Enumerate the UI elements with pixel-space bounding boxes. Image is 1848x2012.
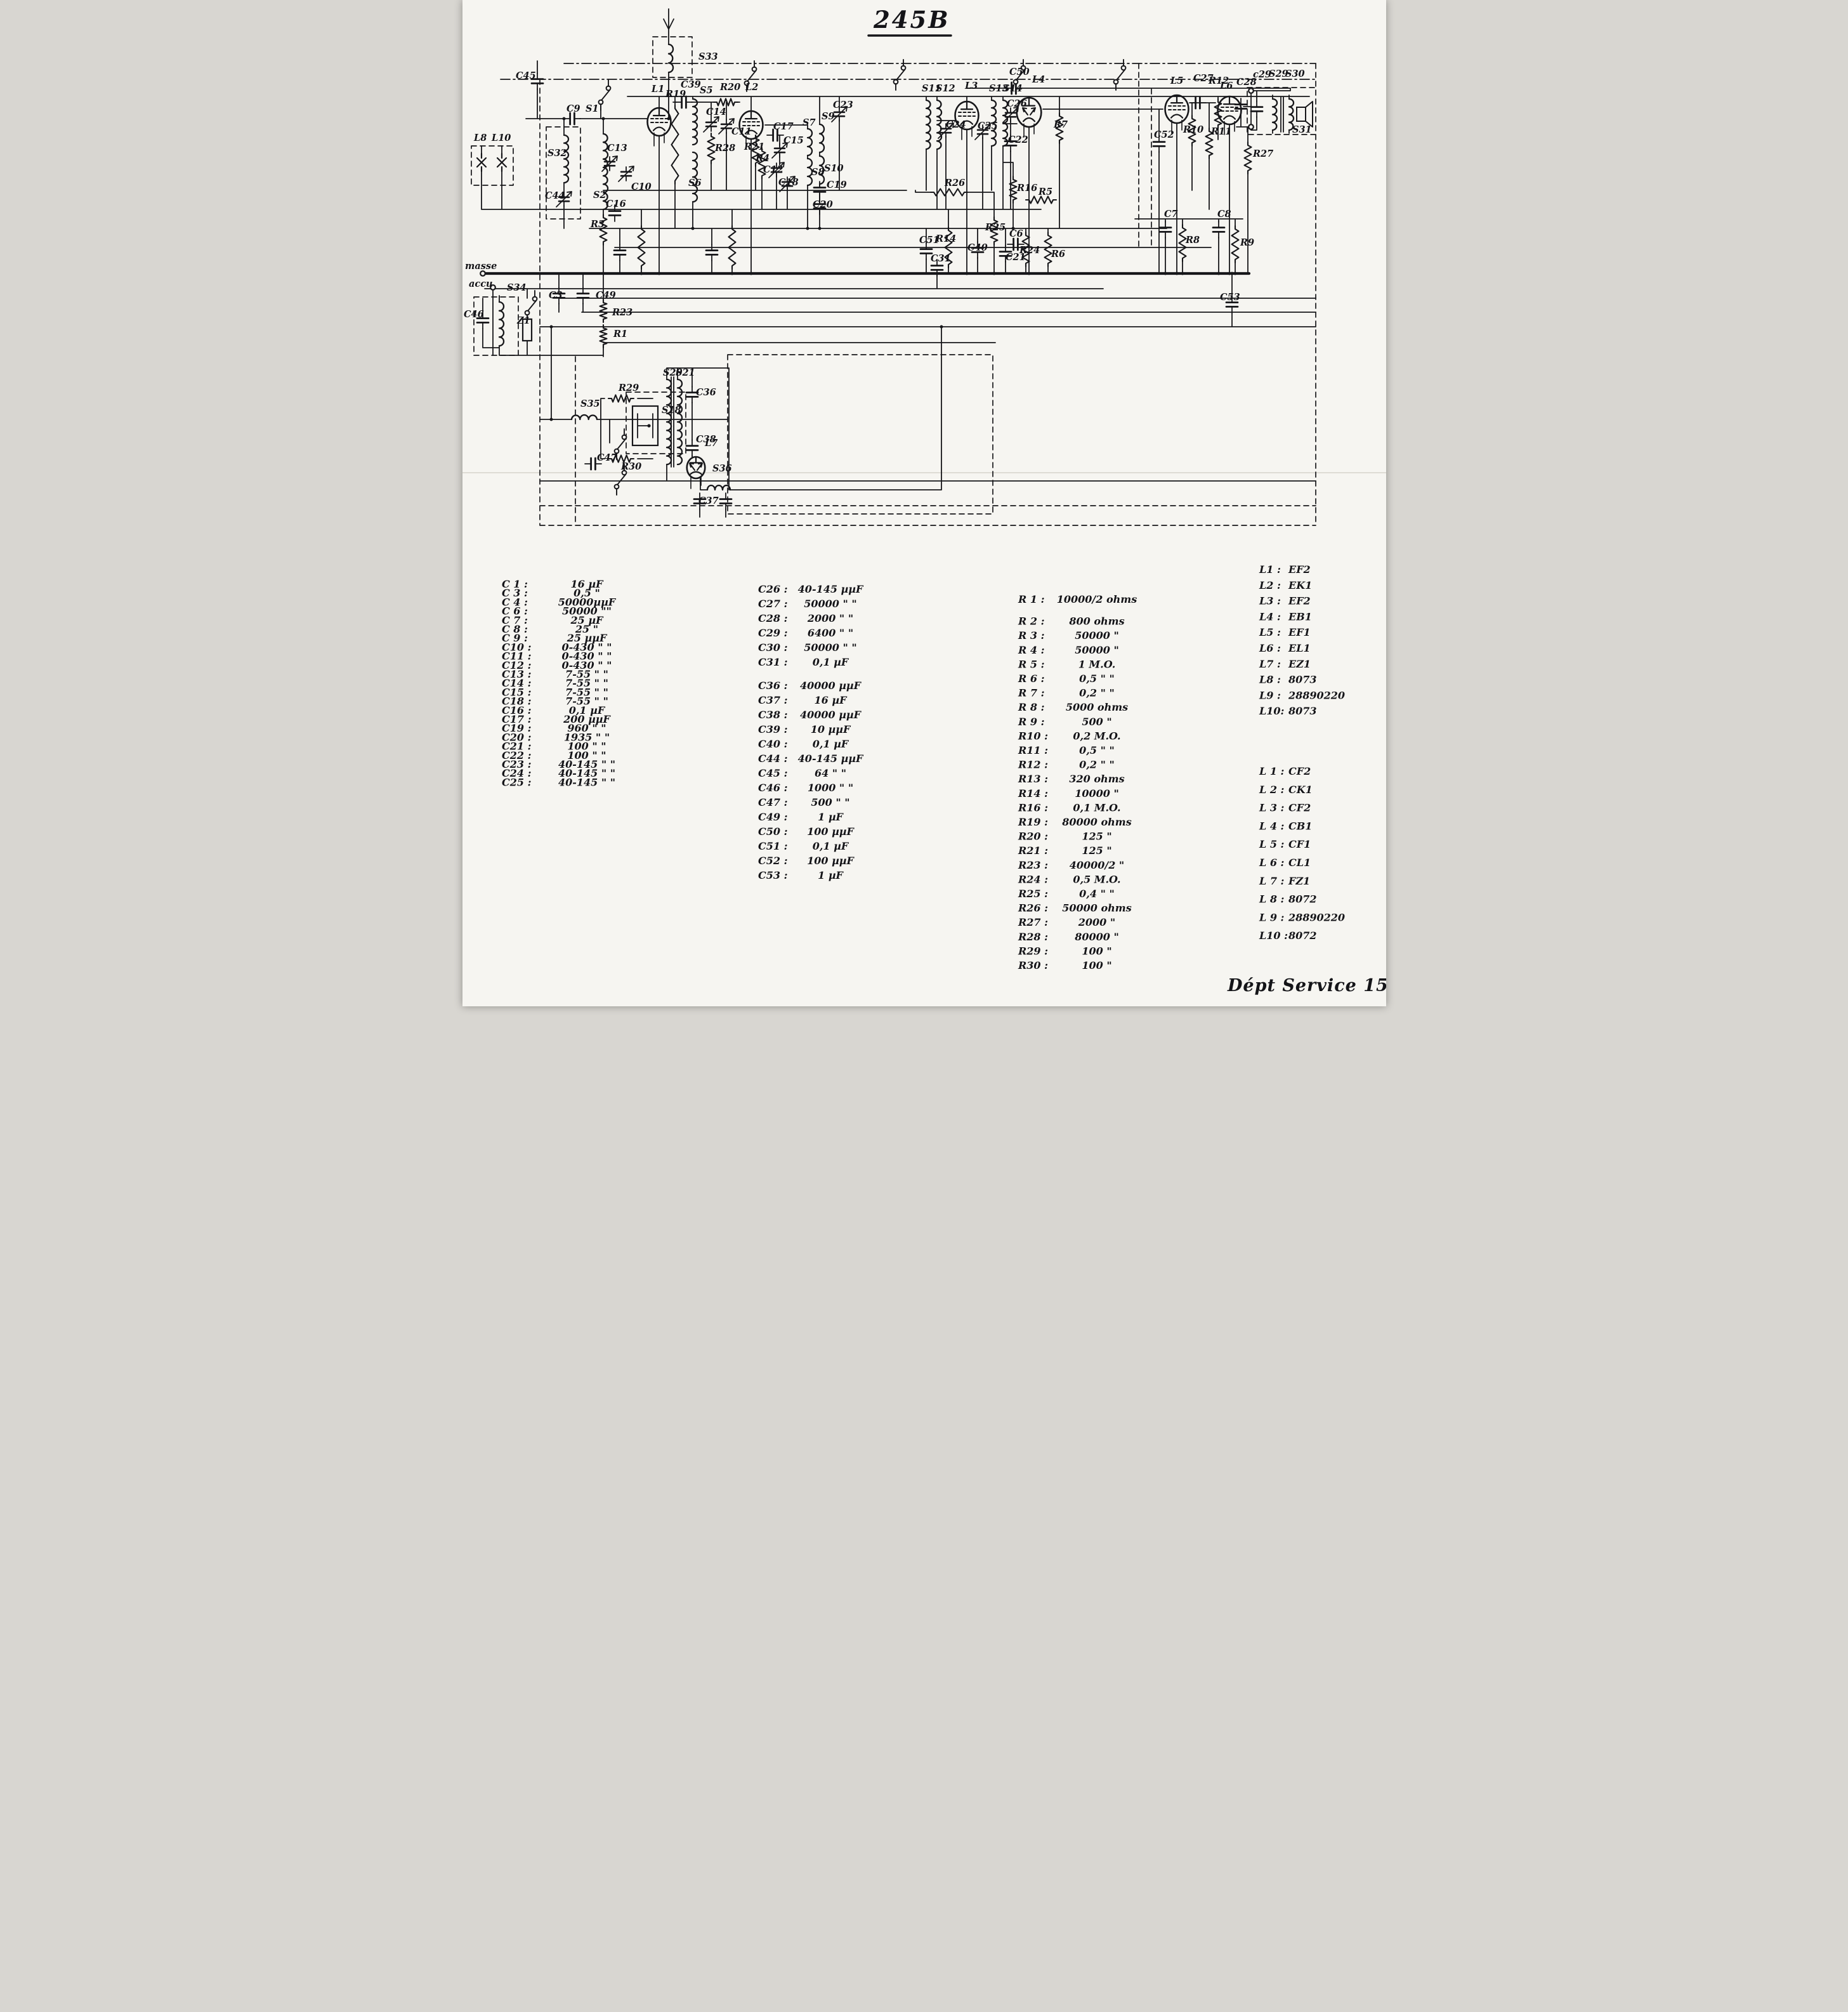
part-value: 0,2 " ": [1079, 759, 1115, 771]
part-value: CL1: [1288, 857, 1311, 869]
part-ref: C47 :: [758, 796, 788, 808]
part-value: 40000 µµF: [799, 709, 862, 721]
schematic-label-L7: L7: [704, 438, 718, 449]
coil-symbol: [1273, 99, 1277, 130]
part-value: EZ1: [1288, 658, 1311, 670]
part-value: 40-145 " ": [558, 776, 615, 788]
part-ref: C45 :: [758, 767, 788, 779]
junction-dot: [639, 272, 643, 275]
junction-dot: [730, 272, 733, 275]
part-ref: R10 :: [1018, 730, 1048, 742]
coil-symbol: [820, 124, 824, 152]
schematic-label-C26: C26: [1007, 98, 1027, 109]
capacitor-symbol: [706, 244, 718, 261]
schematic-label-S1: S1: [586, 103, 599, 114]
part-ref: R 8 :: [1018, 701, 1045, 713]
schematic-label-C37: C37: [698, 496, 719, 506]
schematic-label-C18: C18: [778, 177, 799, 188]
schematic-label-C52: C52: [1154, 129, 1174, 140]
part-value: 10000 ": [1075, 787, 1119, 799]
schematic-label-Z1: Z1: [516, 315, 530, 326]
part-ref: L3 :: [1259, 595, 1281, 607]
part-value: 0,1 µF: [812, 656, 849, 668]
resistor-symbol: [1244, 142, 1251, 174]
part-ref: C25 :: [502, 776, 532, 788]
part-value: 50000 " ": [804, 598, 856, 610]
part-value: 0,1 µF: [812, 738, 849, 750]
resistor-symbol: [600, 325, 606, 348]
junction-dot: [992, 272, 995, 275]
part-ref: C31 :: [758, 656, 788, 668]
schematic-label-C14: C14: [706, 107, 726, 117]
capacitor-symbol: [1160, 221, 1171, 238]
coil-symbol: [693, 152, 697, 202]
wires: [482, 9, 1316, 517]
part-value: CF1: [1288, 838, 1311, 850]
schematic-label-R29: R29: [618, 383, 639, 393]
part-ref: C44 :: [758, 753, 788, 765]
part-value: EF2: [1288, 595, 1311, 607]
schematic-label-C6: C6: [1009, 228, 1023, 239]
part-value: CK1: [1288, 784, 1313, 796]
schematic-label-C50: C50: [1009, 67, 1030, 77]
part-ref: L2 :: [1259, 579, 1281, 591]
part-ref: L 8 :: [1259, 893, 1285, 905]
page-title: 245B: [873, 6, 950, 34]
part-ref: L10:: [1259, 705, 1285, 717]
schematic-label-masse: masse: [465, 261, 497, 272]
part-ref: C36 :: [758, 680, 788, 692]
part-ref: R19 :: [1018, 816, 1048, 828]
schematic-label-C15: C15: [783, 135, 804, 146]
part-ref: L 9 :: [1259, 911, 1285, 923]
part-ref: R 9 :: [1018, 716, 1045, 728]
part-value: 500 ": [1082, 716, 1111, 728]
schematic-label-L4: L4: [1032, 74, 1045, 85]
service-note: Dépt Service 1562: [1227, 976, 1386, 996]
part-ref: C50 :: [758, 825, 788, 838]
schematic-label-R1: R1: [613, 329, 627, 339]
part-value: 100 µµF: [807, 855, 855, 867]
junction-dot: [549, 325, 553, 329]
part-value: 0,2 " ": [1079, 687, 1115, 699]
coil-symbol: [808, 129, 812, 155]
part-ref: R28 :: [1018, 931, 1048, 943]
schematic-label-R25: R25: [985, 222, 1006, 233]
schematic-label-R4: R4: [755, 153, 770, 164]
schematic-label-C12: C12: [763, 164, 783, 175]
schematic-label-C8: C8: [1217, 209, 1231, 220]
schematic-label-C45: C45: [516, 70, 536, 81]
part-ref: C28 :: [758, 612, 788, 624]
part-ref: R11 :: [1018, 744, 1048, 756]
schematic-label-S6: S6: [688, 178, 702, 188]
junction-dot: [549, 418, 553, 421]
resistor-symbol: [600, 299, 606, 322]
part-value: 10 µµF: [810, 723, 851, 735]
schematic-label-S31: S31: [1292, 124, 1312, 135]
terminal-circle: [1248, 88, 1254, 93]
junction-dot: [1217, 272, 1220, 275]
junction-dot: [749, 272, 752, 275]
part-ref: R14 :: [1018, 787, 1048, 799]
part-ref: C49 :: [758, 811, 788, 823]
schematic-label-S34: S34: [507, 282, 527, 293]
part-ref: L 4 :: [1259, 820, 1285, 832]
part-ref: R 3 :: [1018, 629, 1045, 641]
part-ref: L 7 :: [1259, 875, 1285, 887]
part-ref: C39 :: [758, 723, 788, 735]
capacitor-symbol: [814, 181, 825, 198]
part-ref: C40 :: [758, 738, 788, 750]
schematic-label-R14: R14: [935, 233, 956, 244]
diode-symbol: [497, 154, 506, 171]
part-ref: R27 :: [1018, 916, 1048, 928]
coil-symbol: [669, 44, 673, 72]
part-value: 40000/2 ": [1069, 859, 1124, 871]
part-value: 0,1 M.O.: [1073, 801, 1120, 813]
part-value: 10000/2 ohms: [1056, 593, 1136, 605]
part-ref: L 6 :: [1259, 857, 1285, 869]
schematic-label-R26: R26: [944, 178, 965, 188]
resistor-symbol: [714, 99, 738, 106]
part-value: 8073: [1288, 674, 1317, 686]
coil-symbol: [926, 100, 931, 149]
part-value: 64 " ": [814, 767, 846, 779]
part-ref: R 5 :: [1018, 658, 1045, 670]
part-value: 125 ": [1082, 845, 1111, 857]
resistor-symbol: [931, 189, 967, 196]
part-value: 100 ": [1082, 945, 1111, 957]
schematic-label-S18: S18: [662, 405, 681, 416]
components: [477, 44, 1313, 510]
part-ref: C38 :: [758, 709, 788, 721]
part-ref: L 1 :: [1259, 765, 1285, 777]
schematic-label-R27: R27: [1252, 148, 1273, 159]
part-value: CF2: [1288, 765, 1311, 777]
junction-dot: [1233, 272, 1236, 275]
part-ref: R20 :: [1018, 831, 1048, 843]
part-value: 5000 ohms: [1065, 701, 1127, 713]
part-ref: R21 :: [1018, 845, 1048, 857]
schematic-label-L2: L2: [745, 82, 758, 93]
part-ref: L10 :: [1259, 930, 1288, 942]
schematic-label-R8: R8: [1185, 235, 1200, 246]
schematic-label-L5: L5: [1170, 76, 1183, 86]
part-ref: L8 :: [1259, 674, 1281, 686]
part-ref: L 2 :: [1259, 784, 1285, 796]
part-value: 0,5 M.O.: [1073, 873, 1120, 885]
part-value: 800 ohms: [1068, 615, 1124, 628]
part-ref: C26 :: [758, 583, 788, 595]
schematic-label-R21: R21: [744, 141, 764, 152]
junction-dot: [965, 272, 968, 275]
schematic-label-C53: C53: [1220, 292, 1240, 303]
part-value: 100 µµF: [807, 825, 855, 838]
schematic-label-R20: R20: [719, 82, 740, 93]
part-value: EK1: [1288, 579, 1312, 591]
capacitor-symbol: [1251, 101, 1262, 117]
schematic-label-L8: L8: [473, 133, 487, 143]
terminal-circle: [1248, 124, 1254, 129]
part-value: 40-145 µµF: [797, 753, 863, 765]
schematic-label-S32: S32: [547, 148, 567, 159]
part-value: FZ1: [1288, 875, 1310, 887]
wiring: [482, 9, 1316, 517]
part-ref: R 2 :: [1018, 615, 1045, 628]
part-value: 50000 ": [1075, 644, 1119, 656]
schematic-label-C24: C24: [946, 119, 966, 130]
schematic-label-R5: R5: [1038, 187, 1052, 197]
schematic-label-S33: S33: [698, 51, 718, 62]
part-value: EF2: [1288, 563, 1311, 575]
schematic-label-C40: C40: [967, 242, 988, 253]
schematic-label-S8: S8: [811, 167, 825, 178]
junction-dot: [1027, 272, 1030, 275]
part-ref: L 3 :: [1259, 802, 1285, 814]
schematic-label-C47: C47: [597, 452, 617, 463]
schematic-label-R10: R10: [1183, 124, 1203, 135]
part-value: 6400 " ": [807, 627, 853, 639]
schematic-label-L1: L1: [651, 84, 664, 95]
schematic-label-C31: C31: [931, 253, 951, 264]
part-ref: L4 :: [1259, 610, 1281, 622]
junction-dot: [667, 117, 670, 121]
resistor-symbol: [671, 105, 678, 184]
resistor-symbol: [707, 133, 714, 164]
coil-symbol: [707, 485, 730, 490]
schematic-label-C36: C36: [696, 387, 716, 398]
junction-dot: [601, 272, 605, 275]
schematic-label-C11: C11: [731, 126, 752, 137]
part-ref: R29 :: [1018, 945, 1048, 957]
schematic-label-C10: C10: [631, 181, 652, 192]
part-value: 50000 ": [1075, 629, 1119, 641]
part-value: 40000 µµF: [799, 680, 862, 692]
part-ref: C37 :: [758, 694, 788, 706]
schematic-label-R3: R3: [590, 219, 605, 230]
part-value: 2000 ": [1077, 916, 1115, 928]
part-value: 0,5 " ": [1079, 744, 1115, 756]
part-ref: R24 :: [1018, 873, 1048, 885]
schematic-label-C7: C7: [1164, 209, 1178, 220]
diode-symbol: [477, 154, 486, 171]
resistor-symbol: [1231, 226, 1238, 263]
part-value: 100 ": [1082, 959, 1111, 971]
part-ref: R12 :: [1018, 759, 1048, 771]
schematic-label-C19: C19: [827, 180, 847, 190]
schematic-label-C22: C22: [1008, 135, 1028, 145]
trimmer-capacitor-symbol: [704, 117, 719, 132]
part-value: 0,1 µF: [812, 840, 849, 852]
part-ref: L1 :: [1259, 563, 1281, 575]
junction-dot: [562, 117, 565, 121]
schematic-label-S10: S10: [824, 163, 844, 174]
part-ref: C46 :: [758, 782, 788, 794]
junction-dot: [940, 325, 943, 329]
part-value: CF2: [1288, 802, 1311, 814]
junction-dot: [806, 227, 809, 230]
part-ref: R13 :: [1018, 773, 1048, 785]
part-value: 0,5 " ": [1079, 673, 1115, 685]
schematic-label-S7: S7: [803, 117, 816, 128]
part-ref: L5 :: [1259, 626, 1281, 638]
part-value: 8072: [1288, 930, 1317, 942]
schematic-label-C25: C25: [978, 121, 998, 131]
resistor-symbol: [1044, 232, 1051, 266]
part-value: 125 ": [1082, 831, 1111, 843]
junction-dot: [818, 227, 821, 230]
switch-symbol: [598, 80, 610, 110]
junction-dot: [657, 272, 660, 275]
part-value: 50000 ohms: [1062, 902, 1131, 914]
schematic-label-L3: L3: [964, 81, 978, 91]
capacitor-symbol: [577, 287, 589, 304]
part-ref: R16 :: [1018, 801, 1048, 813]
part-ref: C52 :: [758, 855, 788, 867]
schematic-label-S5: S5: [700, 85, 713, 96]
junction-dot: [691, 227, 694, 230]
part-value: 0,2 M.O.: [1073, 730, 1120, 742]
part-ref: L7 :: [1259, 658, 1281, 670]
schematic-label-C13: C13: [607, 143, 627, 154]
schematic-label-C39: C39: [681, 79, 701, 90]
part-ref: C53 :: [758, 869, 788, 881]
part-ref: C51 :: [758, 840, 788, 852]
scanned-page: 245B S33C45C9S1S32C44C13C10C16S2R3L8L10m…: [462, 0, 1386, 1006]
resistor-symbol: [608, 395, 634, 402]
schematic-label-S21: S21: [676, 367, 695, 378]
part-value: EB1: [1288, 610, 1312, 622]
part-value: CB1: [1288, 820, 1312, 832]
resistor-symbol: [1026, 197, 1056, 204]
part-value: EL1: [1288, 642, 1311, 654]
part-value: 320 ohms: [1069, 773, 1124, 785]
part-ref: C27 :: [758, 598, 788, 610]
coil-symbol: [667, 379, 671, 464]
capacitor-symbol: [1213, 221, 1224, 238]
coil-symbol: [499, 302, 504, 346]
schematic-label-accu: accu: [469, 279, 493, 289]
part-value: 8073: [1288, 705, 1317, 717]
switch-symbol: [1113, 60, 1125, 90]
schematic-label-S36: S36: [712, 463, 732, 474]
part-ref: L6 :: [1259, 642, 1281, 654]
vibrator-symbol: [632, 406, 658, 445]
part-value: EF1: [1288, 626, 1311, 638]
part-ref: C29 :: [758, 627, 788, 639]
part-value: 2000 " ": [806, 612, 853, 624]
part-value: 0,4 " ": [1079, 888, 1115, 900]
junction-dot: [1181, 272, 1184, 275]
junction-dot: [601, 117, 605, 121]
schematic-label-C17: C17: [773, 121, 794, 132]
schematic-label-C9: C9: [567, 103, 580, 114]
part-value: 80000 ": [1074, 931, 1119, 943]
part-value: 1 µF: [818, 869, 844, 881]
part-value: 80000 ohms: [1061, 816, 1131, 828]
schematic-label-S9: S9: [822, 111, 835, 122]
schematic-label-C46: C46: [464, 309, 484, 320]
switch-symbol: [893, 60, 905, 90]
page-canvas: 245B S33C45C9S1S32C44C13C10C16S2R3L8L10m…: [462, 0, 1386, 1006]
speaker-icon: [1297, 102, 1313, 127]
schematic-label-C23: C23: [833, 100, 853, 110]
schematic-label-R19: R19: [665, 89, 686, 100]
coil-symbol: [564, 135, 568, 183]
capacitor-symbol: [720, 493, 731, 510]
capacitor-symbol: [564, 113, 580, 124]
schematic-label-R28: R28: [714, 143, 735, 154]
junction-dot: [1175, 272, 1178, 275]
schematic-label-C44: C44: [545, 190, 565, 201]
coil-symbol: [937, 100, 941, 149]
schematic-label-R23: R23: [612, 307, 632, 318]
trimmer-capacitor-symbol: [619, 166, 634, 181]
part-value: 28890220: [1288, 911, 1345, 923]
schematic-label-R16: R16: [1016, 183, 1037, 194]
part-ref: R30 :: [1018, 959, 1048, 971]
coil-symbol: [693, 99, 697, 145]
part-ref: R 1 :: [1018, 593, 1045, 605]
parts-list: C 1 :16 µFC 3 :0,5 "C 4 :50000µµFC 6 :50…: [502, 563, 1345, 971]
capacitor-symbol: [614, 244, 626, 261]
resistor-symbol: [1179, 225, 1186, 261]
part-ref: C30 :: [758, 641, 788, 654]
schematic-label-C20: C20: [813, 199, 833, 210]
part-value: 8072: [1288, 893, 1317, 905]
part-value: 28890220: [1288, 689, 1345, 701]
schematic-label-L6: L6: [1219, 81, 1233, 91]
schematic-label-S12: S12: [936, 83, 955, 94]
schematic-label-R11: R11: [1210, 126, 1231, 137]
part-value: 1 µF: [818, 811, 844, 823]
part-ref: R25 :: [1018, 888, 1048, 900]
part-value: 16 µF: [814, 694, 848, 706]
schematic-label-L10: L10: [491, 133, 511, 143]
part-value: 40-145 µµF: [797, 583, 863, 595]
schematic-label-R9: R9: [1240, 237, 1254, 248]
part-ref: R26 :: [1018, 902, 1048, 914]
part-ref: R23 :: [1018, 859, 1048, 871]
part-ref: R 7 :: [1018, 687, 1045, 699]
part-value: 1000 " ": [807, 782, 853, 794]
schematic-label-R30: R30: [620, 461, 641, 472]
part-value: 1 M.O.: [1078, 658, 1115, 670]
schematic-label-S30: S30: [1285, 69, 1305, 79]
junction-dot: [1163, 272, 1167, 275]
part-ref: R 6 :: [1018, 673, 1045, 685]
schematic-label-S35: S35: [580, 398, 600, 409]
schematic-label-R7: R7: [1053, 119, 1068, 130]
part-ref: L 5 :: [1259, 838, 1285, 850]
schematic-label-R6: R6: [1051, 249, 1065, 260]
schematic-label-R24: R24: [1019, 245, 1040, 256]
schematic-label-C49: C49: [596, 290, 616, 301]
terminal-circle: [480, 271, 485, 276]
part-ref: L9 :: [1259, 689, 1281, 701]
part-value: 50000 " ": [804, 641, 856, 654]
schematic-label-C3: C3: [549, 290, 563, 301]
part-value: 500 " ": [811, 796, 849, 808]
schematic-label-S14: S14: [1003, 83, 1023, 94]
schematic-label-C16: C16: [606, 199, 626, 209]
part-ref: R 4 :: [1018, 644, 1045, 656]
schematic-label-S2: S2: [593, 190, 606, 201]
junction-dot: [1230, 272, 1233, 275]
